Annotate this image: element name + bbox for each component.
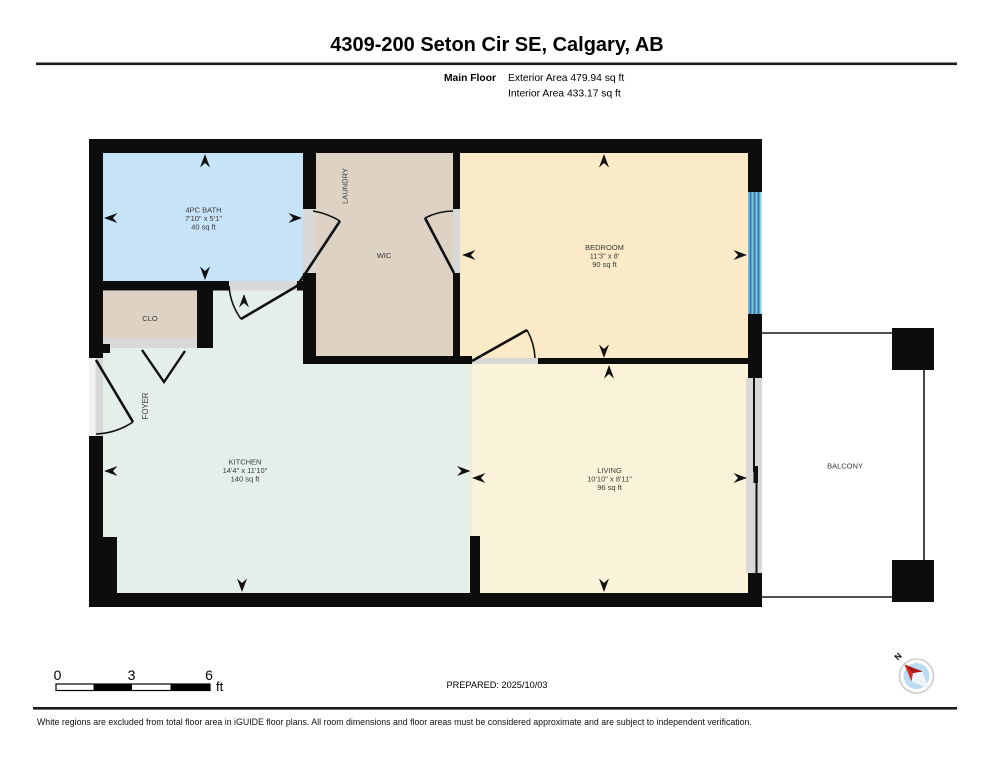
svg-text:Main Floor: Main Floor xyxy=(444,73,496,84)
svg-text:LAUNDRY: LAUNDRY xyxy=(341,168,350,204)
svg-text:WIC: WIC xyxy=(377,251,392,260)
svg-text:4309-200 Seton Cir SE, Calgary: 4309-200 Seton Cir SE, Calgary, AB xyxy=(330,34,663,56)
svg-text:Exterior Area 479.94 sq ft: Exterior Area 479.94 sq ft xyxy=(508,73,624,84)
svg-text:BALCONY: BALCONY xyxy=(827,462,863,471)
svg-text:90 sq ft: 90 sq ft xyxy=(592,260,618,269)
svg-text:96 sq ft: 96 sq ft xyxy=(597,483,623,492)
svg-text:0: 0 xyxy=(54,667,62,683)
svg-text:PREPARED: 2025/10/03: PREPARED: 2025/10/03 xyxy=(447,680,548,690)
svg-text:Interior Area 433.17 sq ft: Interior Area 433.17 sq ft xyxy=(508,89,621,100)
svg-text:140 sq ft: 140 sq ft xyxy=(231,475,261,484)
svg-text:6: 6 xyxy=(205,667,213,683)
svg-text:FOYER: FOYER xyxy=(141,392,150,419)
svg-text:3: 3 xyxy=(128,667,136,683)
svg-text:CLO: CLO xyxy=(142,314,158,323)
svg-text:ft: ft xyxy=(216,679,224,694)
svg-text:White regions are excluded fro: White regions are excluded from total fl… xyxy=(37,717,752,727)
svg-text:40 sq ft: 40 sq ft xyxy=(191,223,217,232)
